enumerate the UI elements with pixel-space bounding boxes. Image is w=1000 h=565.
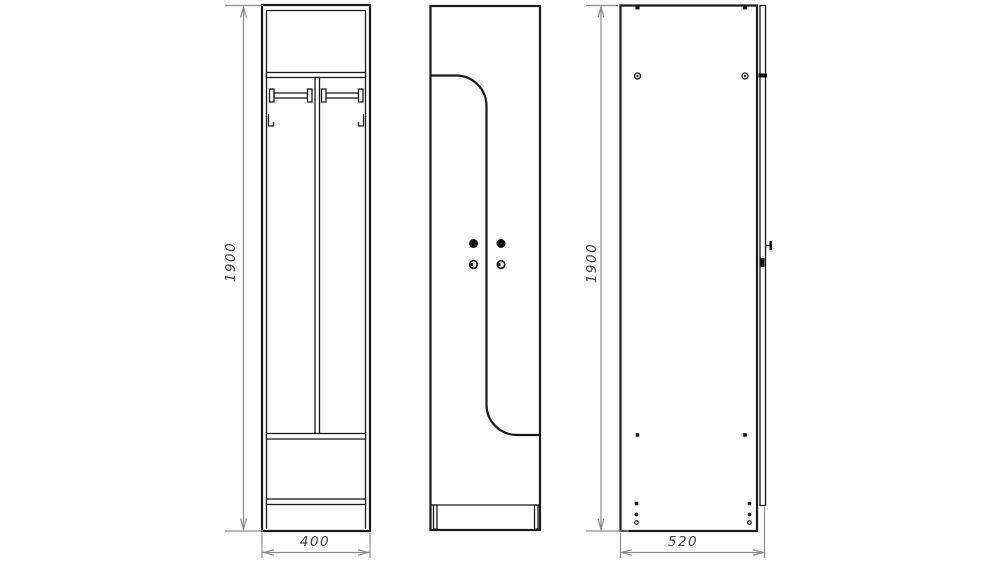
screw-mark <box>748 502 752 506</box>
dimension-label-depth: 520 <box>668 534 698 550</box>
knob-side <box>770 241 773 250</box>
screw-mark <box>743 433 747 437</box>
bottom-shelf <box>267 499 366 505</box>
screw-mark <box>635 513 639 517</box>
screw-mark <box>635 521 639 525</box>
rail-bracket <box>308 89 313 102</box>
screw-mark <box>636 433 640 437</box>
hanger-rail-left <box>270 89 313 102</box>
screw-mark <box>748 521 752 525</box>
screw-mark <box>743 6 747 10</box>
screw-mark <box>636 6 640 10</box>
dimension-front-height: 1900 <box>223 6 263 532</box>
front-closed-view <box>431 6 541 530</box>
rail-bar <box>274 93 308 98</box>
shelf-joint-mark <box>759 74 768 78</box>
drawing-canvas: 1900 400 1900 520 <box>0 0 1000 565</box>
door-knob-right <box>497 239 506 248</box>
side-panel-outline <box>621 6 758 532</box>
lock-side <box>760 258 765 267</box>
rail-bar <box>326 93 359 98</box>
plinth-leg-right <box>535 505 539 529</box>
dimension-label-width: 400 <box>300 534 330 550</box>
door-knob-left <box>469 239 478 248</box>
door-parting-line <box>431 76 541 436</box>
rail-bracket <box>270 89 275 102</box>
door-lock-right <box>497 261 505 269</box>
lock-notch <box>498 263 501 266</box>
door-lock-left <box>470 261 478 269</box>
rail-bracket <box>322 89 327 102</box>
screw-mark <box>748 513 752 517</box>
screw-center <box>636 75 638 77</box>
plinth-leg-left <box>434 505 438 529</box>
screw-mark <box>635 502 639 506</box>
front-open-view <box>262 5 370 531</box>
dimension-label-height: 1900 <box>223 242 239 282</box>
doors-outline <box>431 6 541 530</box>
hanger-rail-right <box>322 89 364 102</box>
rail-bracket <box>359 89 364 102</box>
center-divider <box>315 78 320 434</box>
dimension-front-width: 400 <box>262 533 370 558</box>
dimension-side-depth: 520 <box>621 507 765 558</box>
screw-center <box>744 75 746 77</box>
top-shelf <box>267 73 366 78</box>
side-view <box>621 6 773 532</box>
mid-shelf <box>267 434 366 440</box>
coat-hook-right <box>359 114 364 126</box>
dimension-label-height: 1900 <box>584 243 600 283</box>
assembly-screws <box>635 6 752 525</box>
locker-technical-drawing: 1900 400 1900 520 <box>0 0 1000 565</box>
door-edge-strip <box>760 6 766 506</box>
coat-hook-left <box>269 114 274 126</box>
dimension-side-height: 1900 <box>584 6 629 532</box>
lock-notch <box>470 263 473 266</box>
